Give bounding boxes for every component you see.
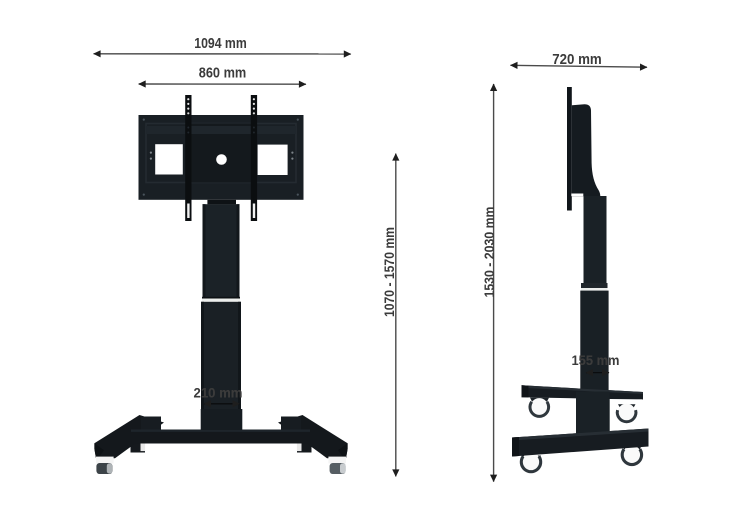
svg-text:1070 - 1570 mm: 1070 - 1570 mm: [381, 227, 397, 317]
svg-text:720 mm: 720 mm: [552, 52, 602, 68]
svg-text:1530 - 2030 mm: 1530 - 2030 mm: [481, 207, 497, 298]
svg-text:1094 mm: 1094 mm: [194, 36, 247, 52]
svg-text:860 mm: 860 mm: [199, 66, 247, 82]
